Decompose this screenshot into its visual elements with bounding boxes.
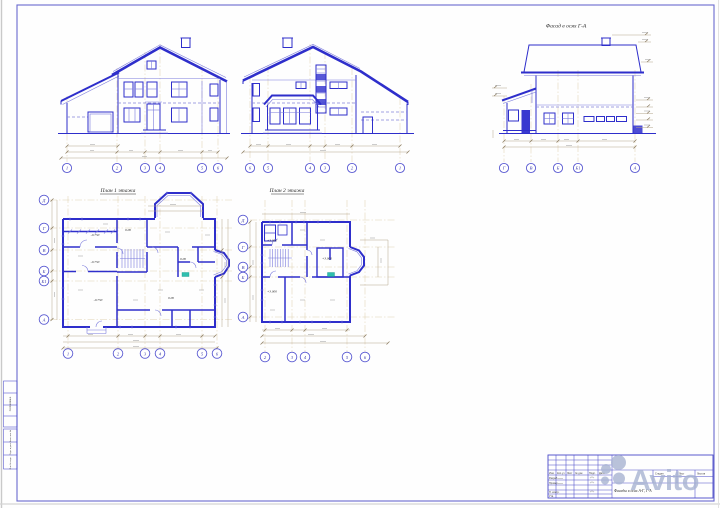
scan-edges [0, 0, 720, 508]
axis-label: В [242, 265, 245, 270]
frame-attribute-strip: Согласовано Взам. инв. № Подп. и дата Ин… [4, 381, 18, 469]
axis-label: 1 [66, 166, 68, 171]
elevation-front-axes: 1 2 3 4 5 6 [62, 163, 222, 172]
axis-label: Г [42, 226, 46, 231]
axis-label: В [530, 166, 533, 171]
level-mark: +3.000 [322, 257, 332, 261]
blueprint-sheet: 1 2 3 4 5 6 [0, 0, 720, 508]
level-mark: -0.750 [91, 260, 100, 264]
axis-label: Г [241, 245, 245, 250]
level-mark: 0.00 [168, 296, 174, 300]
elevation-marks [492, 35, 653, 128]
plan2-axes-bottom: 2 3 4 5 6 [260, 352, 370, 362]
svg-text:Подп.: Подп. [589, 472, 596, 475]
floor-plan-2: План 2 этажа [238, 188, 395, 362]
axis-label: А [241, 315, 245, 320]
plan1-title: План 1 этажа [100, 188, 136, 194]
axis-label: 1 [399, 166, 401, 171]
axis-label: Б1 [574, 166, 580, 171]
plan1-axes-bottom: 1 2 3 4 5 6 [63, 349, 222, 359]
fixture-highlight [182, 273, 189, 277]
svg-text:Изм.: Изм. [549, 472, 555, 475]
elevation-front: 1 2 3 4 5 6 [58, 38, 230, 173]
elevation-side-title: Фасад в осях Г-А [546, 23, 587, 30]
elevation-rear: 6 5 4 3 2 1 [241, 38, 414, 173]
fixture-highlight [328, 273, 335, 277]
elevation-rear-axes: 6 5 4 3 2 1 [245, 163, 404, 172]
plan2-title: План 2 этажа [269, 188, 305, 194]
elevation-side-axes: Г В Б Б1 А [499, 163, 639, 172]
floor-plan-1: План 1 этажа [39, 188, 232, 358]
plan2-axes-left: Д Г В Б А [238, 215, 248, 322]
axis-label: Г [502, 166, 506, 171]
axis-label: 1 [67, 351, 69, 356]
axis-label: А [42, 317, 46, 322]
svg-text:Лист: Лист [567, 472, 573, 475]
level-mark: -0.750 [91, 233, 100, 237]
strip-label-vzam: Взам. инв. № [9, 429, 12, 442]
axis-label: Б [241, 275, 245, 280]
elevation-side: Фасад в осях Г-А [492, 23, 656, 173]
level-mark: -0.750 [94, 298, 103, 302]
plan1-axes-left: Д Г В Б Б1 А [39, 195, 49, 324]
strip-label-agreed: Согласовано [9, 396, 12, 411]
svg-text:№ док.: № док. [575, 472, 583, 475]
watermark-text: Avito [630, 465, 699, 497]
axis-label: Б [42, 269, 46, 274]
svg-text:Провер.: Провер. [549, 482, 559, 485]
axis-label: Б [556, 166, 560, 171]
level-mark: 0.00 [180, 257, 186, 261]
level-mark: +3.000 [267, 290, 277, 294]
level-mark: 0.00 [125, 228, 131, 232]
svg-text:Кол.уч: Кол.уч [557, 472, 565, 475]
svg-text:Н. контр.: Н. контр. [549, 491, 560, 494]
level-mark: +3.000 [267, 239, 277, 243]
drawing-canvas: 1 2 3 4 5 6 [0, 0, 720, 508]
axis-label: В [43, 248, 46, 253]
svg-text:Утв.: Утв. [549, 495, 554, 498]
axis-label: А [633, 166, 637, 171]
strip-label-inv: Инв. № подл. [9, 456, 12, 469]
axis-label: Б1 [40, 279, 46, 284]
strip-label-podp: Подп. и дата [10, 442, 12, 455]
title-block-header-cols: Изм. Кол.уч Лист № док. Подп. Дата [549, 472, 605, 475]
sheet-frame [17, 5, 714, 501]
svg-text:Разраб.: Разраб. [549, 477, 558, 480]
